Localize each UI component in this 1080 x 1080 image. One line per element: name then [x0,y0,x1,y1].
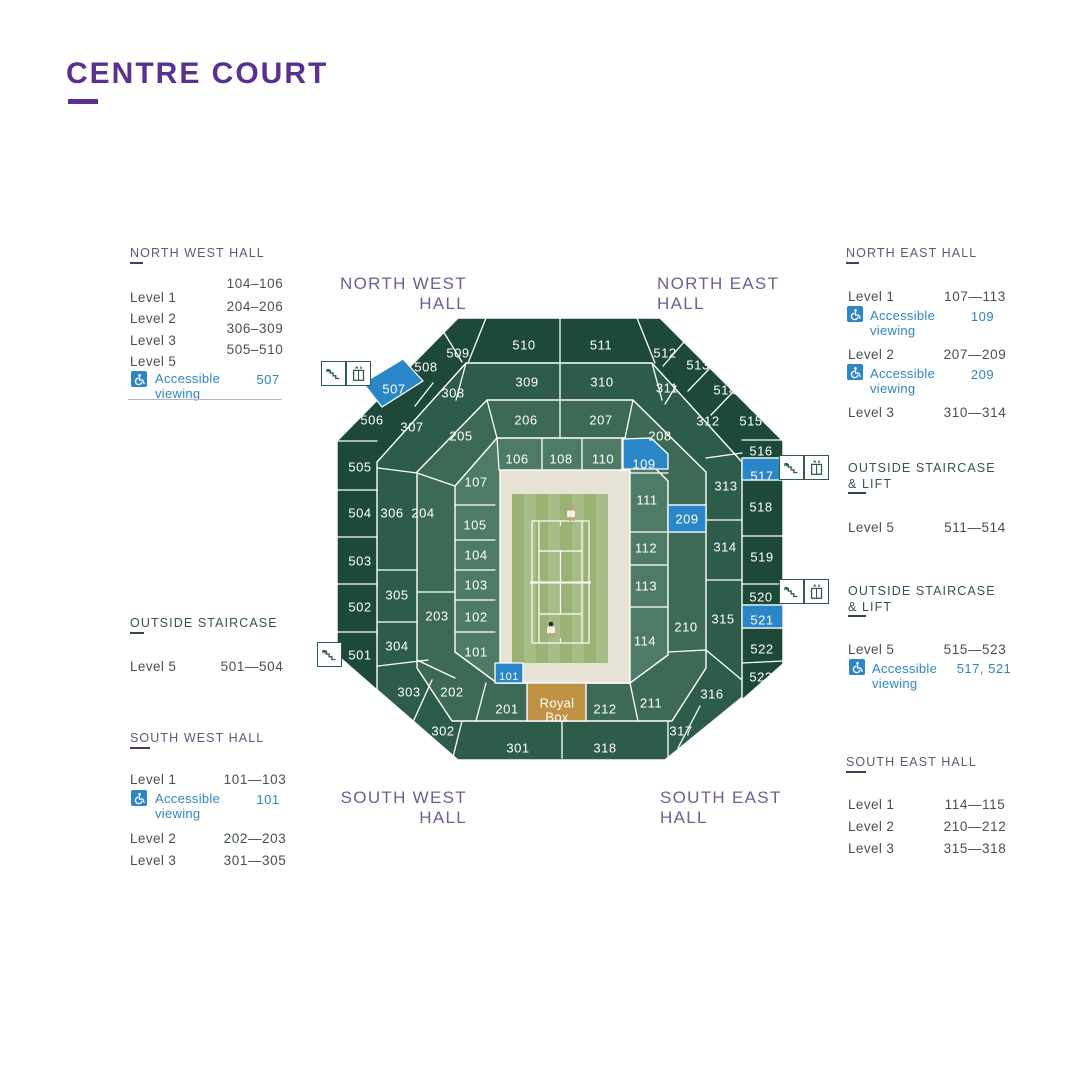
accessible-viewing-value: 517, 521 [934,661,1034,676]
section-label-318: 318 [593,741,616,756]
level-row-value: 505–510 [200,342,310,357]
section-label-513: 513 [686,358,709,373]
section-label-309: 309 [515,375,538,390]
level-row-value: 511—514 [920,520,1030,535]
heading-underline [848,492,866,494]
accessible-viewing-value: 109 [930,309,1035,324]
level-row-value: 210—212 [920,819,1030,834]
section-label-515: 515 [739,414,762,429]
icon-group-west-staircase [317,642,342,667]
level-row-value: 202—203 [200,831,310,846]
section-label-305: 305 [385,588,408,603]
level-row-label: Level 5 [130,354,176,369]
section-label-507: 507 [382,382,405,397]
section-label-316: 316 [700,687,723,702]
royal-box-label-line1: Royal [540,696,575,711]
lift-icon [350,365,368,383]
section-label-517: 517 [750,469,773,484]
level-row-value: 315—318 [920,841,1030,856]
map-label-north-east-hall: NORTH EAST HALL [657,274,779,313]
section-label-205: 205 [449,429,472,444]
level-row-value: 104–106 [200,276,310,291]
level-row-value: 515—523 [920,642,1030,657]
accessible-viewing-label: Accessible viewing [155,791,235,821]
section-label-301: 301 [506,741,529,756]
accessible-viewing-icon [849,659,865,675]
level-row-label: Level 1 [130,290,176,305]
wheelchair-icon [133,792,146,805]
stairs-icon [783,459,801,477]
wheelchair-icon [849,366,862,379]
section-label-211: 211 [640,696,662,711]
section-label-315: 315 [711,612,734,627]
section-label-206: 206 [514,413,537,428]
level-row-label: Level 2 [130,831,176,846]
section-label-314: 314 [713,540,736,555]
section-label-212: 212 [593,702,616,717]
section-label-308: 308 [441,386,464,401]
level-row-value: 107—113 [920,289,1030,304]
accessible-viewing-icon [131,790,147,806]
level-row-label: Level 5 [848,520,894,535]
section-label-504: 504 [348,506,371,521]
level-row-value: 301—305 [200,853,310,868]
level-row-label: Level 5 [848,642,894,657]
section-label-103: 103 [464,578,487,593]
level-row-label: Level 3 [848,841,894,856]
panel-heading-south-east-hall: SOUTH EAST HALL [846,755,977,769]
section-label-505: 505 [348,460,371,475]
section-label-204: 204 [411,506,434,521]
royal-box-label-line2: Box [545,710,569,725]
stairs-icon [325,365,343,383]
level-row-label: Level 2 [848,347,894,362]
section-label-503: 503 [348,554,371,569]
level-row-label: Level 3 [848,405,894,420]
level-row-label: Level 1 [130,772,176,787]
level-row-value: 204–206 [200,299,310,314]
level-row-label: Level 2 [848,819,894,834]
section-label-113: 113 [635,579,657,594]
accessible-viewing-icon [847,306,863,322]
section-label-107: 107 [464,475,487,490]
section-label-102: 102 [464,610,487,625]
heading-underline [130,747,150,749]
panel-heading-outside-staircase-west: OUTSIDE STAIRCASE [130,616,278,630]
accessible-viewing-value: 101 [230,792,306,807]
stairs-icon [321,646,339,664]
level-row-label: Level 5 [130,659,176,674]
accessible-viewing-icon [847,364,863,380]
heading-underline [130,632,144,634]
stadium-seating-map: Royal Box 510511512513514515509508507506… [300,300,840,780]
section-label-302: 302 [431,724,454,739]
title-underline-dash [68,99,98,104]
level-row-value: 114—115 [920,797,1030,812]
lift-icon [808,583,826,601]
wheelchair-icon [851,661,864,674]
level-row-value: 501—504 [200,659,304,674]
section-label-506: 506 [360,413,383,428]
icon-group-east-lower-staircase-lift [779,579,829,604]
heading-underline [848,615,866,617]
icon-group-east-upper-staircase-lift [779,455,829,480]
section-label-110: 110 [592,452,614,467]
section-label-306: 306 [380,506,403,521]
section-label-519: 519 [750,550,773,565]
level-row-label: Level 1 [848,797,894,812]
stairs-icon [783,583,801,601]
section-label-310: 310 [590,375,613,390]
section-label-203: 203 [425,609,448,624]
section-label-109: 109 [632,457,655,472]
section-label-201: 201 [495,702,518,717]
level-row-label: Level 3 [130,853,176,868]
section-label-518: 518 [749,500,772,515]
section-label-303: 303 [397,685,420,700]
section-label-111: 111 [636,493,657,508]
level-row-value: 101—103 [200,772,310,787]
level-row-value: 207—209 [920,347,1030,362]
panel-divider [128,399,282,400]
section-label-101: 101 [464,645,487,660]
section-label-501: 501 [348,648,371,663]
section-label-512: 512 [653,346,676,361]
map-label-north-west-hall: NORTH WEST HALL [340,274,467,313]
centre-court-seating-map-page: CENTRE COURT [0,0,1080,1080]
page-title: CENTRE COURT [66,57,328,91]
panel-heading-north-east-hall: NORTH EAST HALL [846,246,977,260]
section-label-114: 114 [634,634,656,649]
panel-heading-south-west-hall: SOUTH WEST HALL [130,731,264,745]
section-label-522: 522 [750,642,773,657]
section-label-509: 509 [446,346,469,361]
heading-underline [846,262,859,264]
panel-heading-outside-staircase-lift-1: OUTSIDE STAIRCASE & LIFT [848,460,998,492]
level-row-value: 306–309 [200,321,310,336]
level-row-value: 310—314 [920,405,1030,420]
section-label-511: 511 [590,338,612,353]
section-label-106: 106 [505,452,528,467]
map-label-south-west-hall: SOUTH WEST HALL [341,788,467,827]
section-label-105: 105 [463,518,486,533]
level-row-label: Level 3 [130,333,176,348]
section-label-523: 523 [749,670,772,685]
section-label-210: 210 [674,620,697,635]
wheelchair-icon [849,308,862,321]
tennis-court [512,494,608,663]
section-label-202: 202 [440,685,463,700]
section-label-317: 317 [669,724,692,739]
panel-heading-north-west-hall: NORTH WEST HALL [130,246,265,260]
section-label-209: 209 [675,512,698,527]
accessible-viewing-value: 507 [230,372,306,387]
map-label-south-east-hall: SOUTH EAST HALL [660,788,782,827]
heading-underline [130,262,143,264]
icon-group-nw-staircase-lift [321,361,371,386]
section-label-112: 112 [635,541,657,556]
accessible-viewing-label: Accessible viewing [155,371,235,401]
section-label-312: 312 [696,414,719,429]
accessible-viewing-icon [131,371,147,387]
lift-icon [808,459,826,477]
section-label-207: 207 [589,413,612,428]
section-label-510: 510 [512,338,535,353]
section-label-311: 311 [656,381,678,396]
level-row-label: Level 1 [848,289,894,304]
level-row-label: Level 2 [130,311,176,326]
section-label-208: 208 [648,429,671,444]
section-label-108: 108 [549,452,572,467]
section-label-502: 502 [348,600,371,615]
accessible-viewing-value: 209 [930,367,1035,382]
section-label-307: 307 [400,420,423,435]
section-label-508: 508 [414,360,437,375]
section-label-101: 101 [499,671,519,683]
section-label-516: 516 [749,444,772,459]
section-label-304: 304 [385,639,408,654]
section-label-520: 520 [749,590,772,605]
panel-heading-outside-staircase-lift-2: OUTSIDE STAIRCASE & LIFT [848,583,998,615]
heading-underline [846,771,866,773]
wheelchair-icon [133,373,146,386]
section-label-104: 104 [464,548,487,563]
section-label-514: 514 [713,383,736,398]
section-label-313: 313 [714,479,737,494]
section-label-521: 521 [750,613,773,628]
